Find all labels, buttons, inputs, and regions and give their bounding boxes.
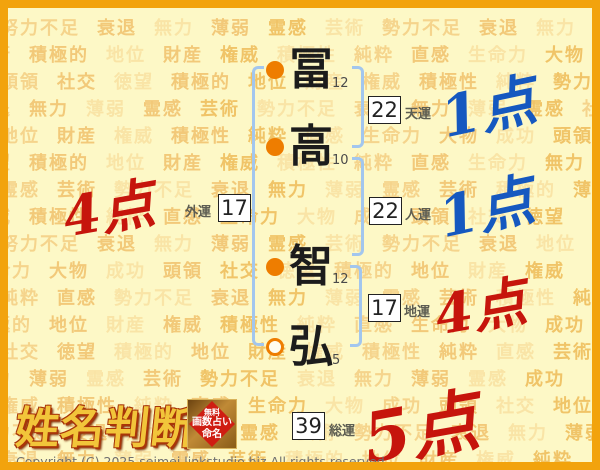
stroke-count-1: 12 [332, 76, 356, 91]
chiun-value-box: 17 [368, 294, 401, 322]
name-fortune-chart: 努力不足衰退無力薄弱霊感芸術勢力不足衰退無力薄弱芸術積極的地位財産権威積極性純粋… [0, 0, 600, 470]
soun-value-box: 39 [292, 412, 325, 440]
soun-label: 総運 [329, 420, 355, 439]
badge-line-3: 命名 [202, 429, 222, 441]
badge-line-2: 画数占い [192, 417, 232, 429]
watermark-row: 努力不足衰退無力薄弱霊感芸術勢力不足衰退無力薄弱 [8, 14, 592, 40]
char-open-bullet-icon [266, 338, 284, 356]
name-char-1: 冨 [286, 48, 336, 92]
chiun-score: 4点 [428, 257, 532, 351]
gaiun-score: 4点 [56, 159, 160, 253]
free-naming-badge[interactable]: 無料 画数占い 命名 [187, 399, 237, 449]
copyright-text: Copyright (C) 2025 seimei.linkstudio.biz… [16, 454, 389, 469]
stroke-count-3: 12 [332, 272, 356, 287]
site-logo[interactable]: 姓名判断 [13, 392, 200, 456]
badge-line-1: 無料 [204, 408, 220, 417]
gaiun-label: 外運 [185, 201, 211, 220]
char-bullet-icon [266, 138, 284, 156]
name-char-4: 弘 [286, 325, 336, 369]
chiun-label: 地運 [404, 301, 430, 320]
jinun-bracket [352, 157, 364, 256]
stroke-count-4: 5 [332, 353, 356, 368]
name-char-3: 智 [286, 245, 336, 289]
tenun-label: 天運 [405, 103, 431, 122]
name-char-2: 高 [286, 125, 336, 169]
jinun-value-box: 22 [369, 197, 402, 225]
char-bullet-icon [266, 61, 284, 79]
gaiun-value-box: 17 [218, 194, 251, 222]
char-bullet-icon [266, 258, 284, 276]
tenun-value-box: 22 [368, 96, 401, 124]
gaiun-bracket [252, 66, 264, 346]
jinun-label: 人運 [405, 204, 431, 223]
stroke-count-2: 10 [332, 153, 356, 168]
